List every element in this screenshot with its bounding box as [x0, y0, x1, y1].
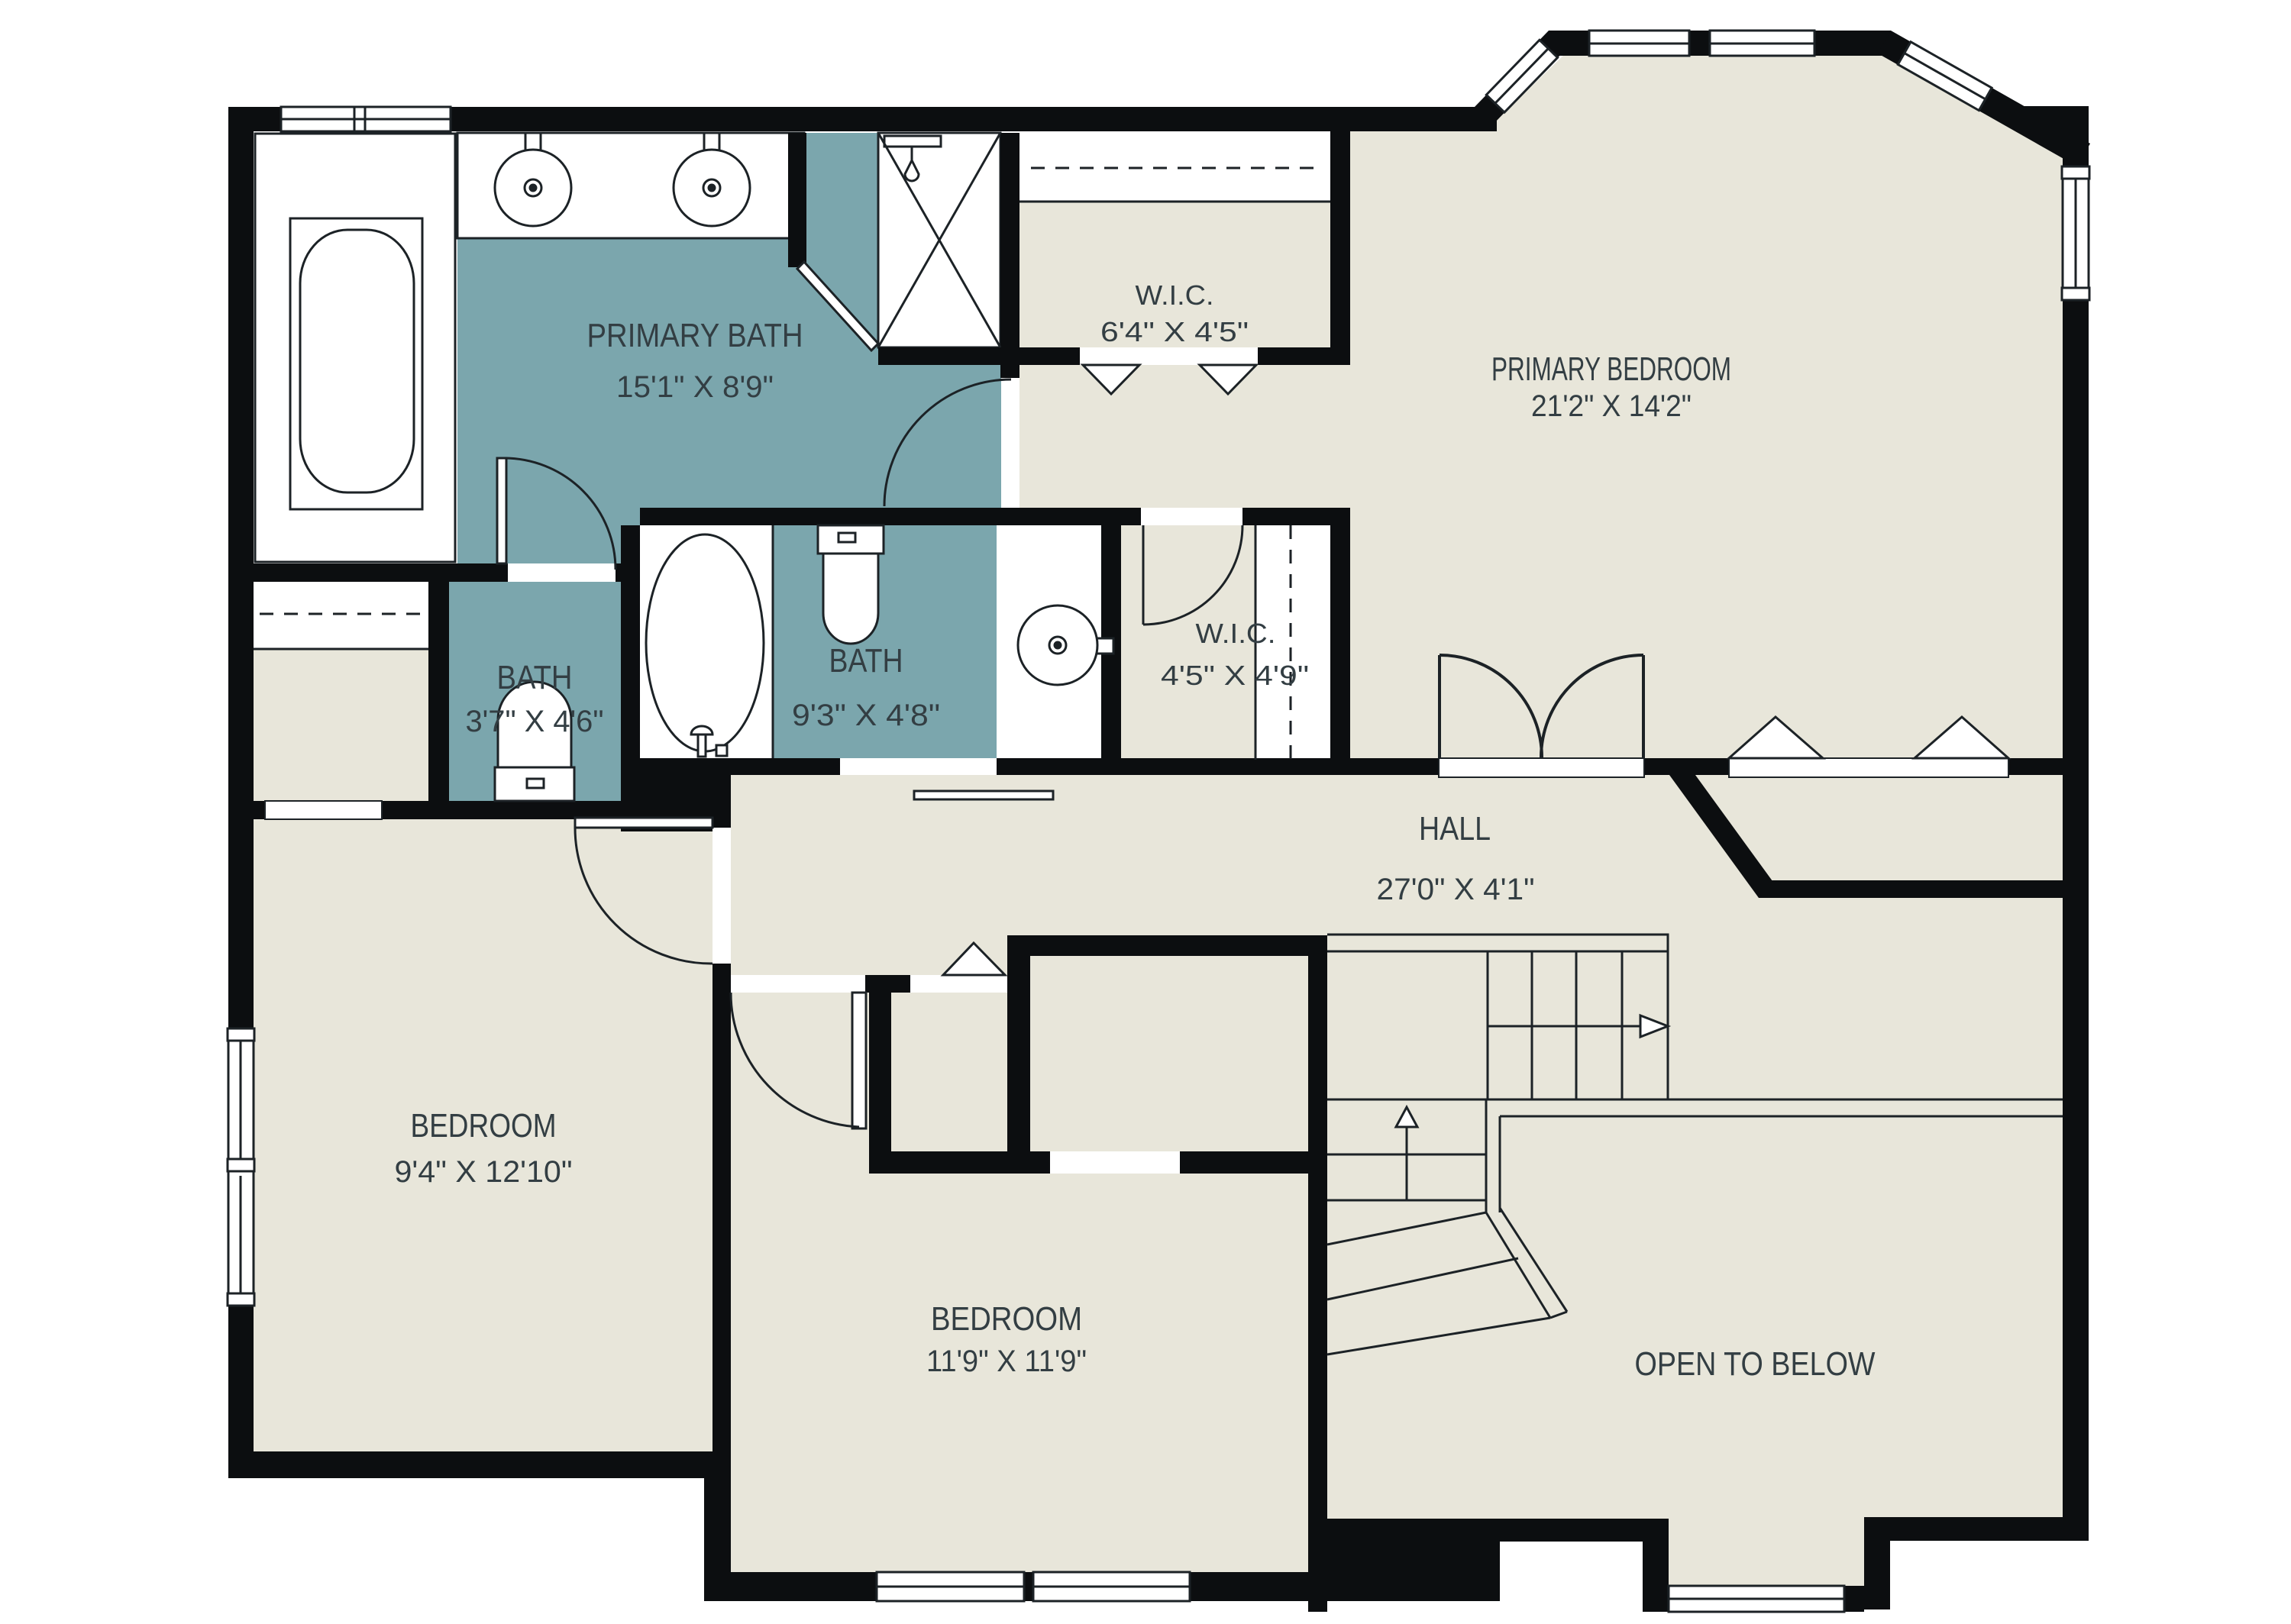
svg-text:15'1" X 8'9": 15'1" X 8'9": [616, 370, 774, 404]
svg-text:HALL: HALL: [1419, 810, 1491, 848]
svg-text:9'4" X 12'10": 9'4" X 12'10": [395, 1155, 573, 1189]
svg-text:PRIMARY BEDROOM: PRIMARY BEDROOM: [1491, 350, 1731, 388]
svg-text:9'3" X 4'8": 9'3" X 4'8": [792, 699, 940, 732]
svg-text:BATH: BATH: [497, 659, 573, 696]
svg-text:BEDROOM: BEDROOM: [411, 1107, 557, 1145]
svg-text:OPEN TO BELOW: OPEN TO BELOW: [1635, 1345, 1876, 1383]
svg-text:27'0" X 4'1": 27'0" X 4'1": [1377, 873, 1535, 906]
svg-text:BATH: BATH: [829, 642, 903, 680]
svg-text:W.I.C.: W.I.C.: [1196, 618, 1276, 649]
svg-text:21'2" X 14'2": 21'2" X 14'2": [1531, 389, 1692, 423]
svg-text:4'5" X 4'9": 4'5" X 4'9": [1161, 660, 1309, 691]
svg-text:BEDROOM: BEDROOM: [931, 1300, 1082, 1338]
svg-text:11'9" X 11'9": 11'9" X 11'9": [926, 1345, 1087, 1378]
svg-text:PRIMARY BATH: PRIMARY BATH: [587, 317, 803, 354]
svg-text:W.I.C.: W.I.C.: [1136, 279, 1214, 311]
svg-text:3'7" X 4'6": 3'7" X 4'6": [466, 705, 604, 738]
svg-text:6'4" X 4'5": 6'4" X 4'5": [1100, 316, 1249, 347]
